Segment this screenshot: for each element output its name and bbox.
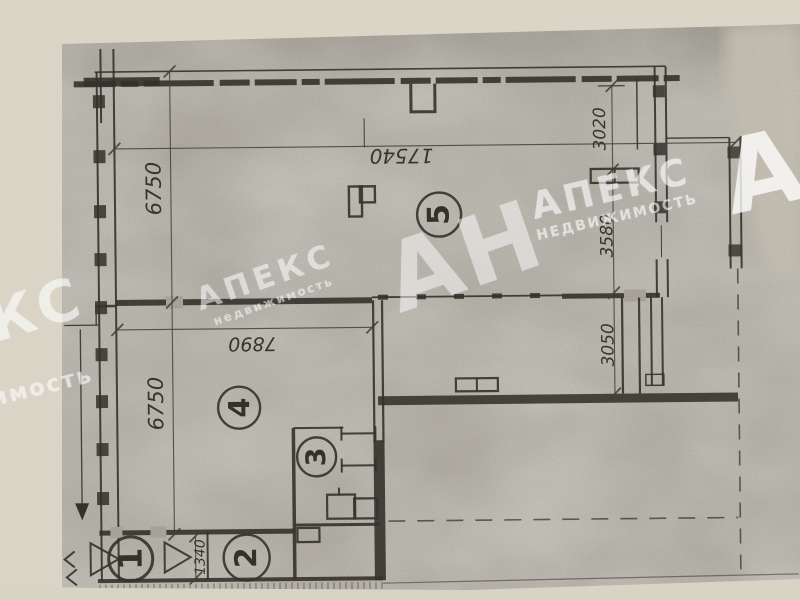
floor-plan-svg: 17540 6750 6750 3020 3580 3050 7890 1340… [0,0,800,600]
floor-plan-scan-page: 17540 6750 6750 3020 3580 3050 7890 1340… [0,0,800,600]
scan-grain [58,24,800,592]
